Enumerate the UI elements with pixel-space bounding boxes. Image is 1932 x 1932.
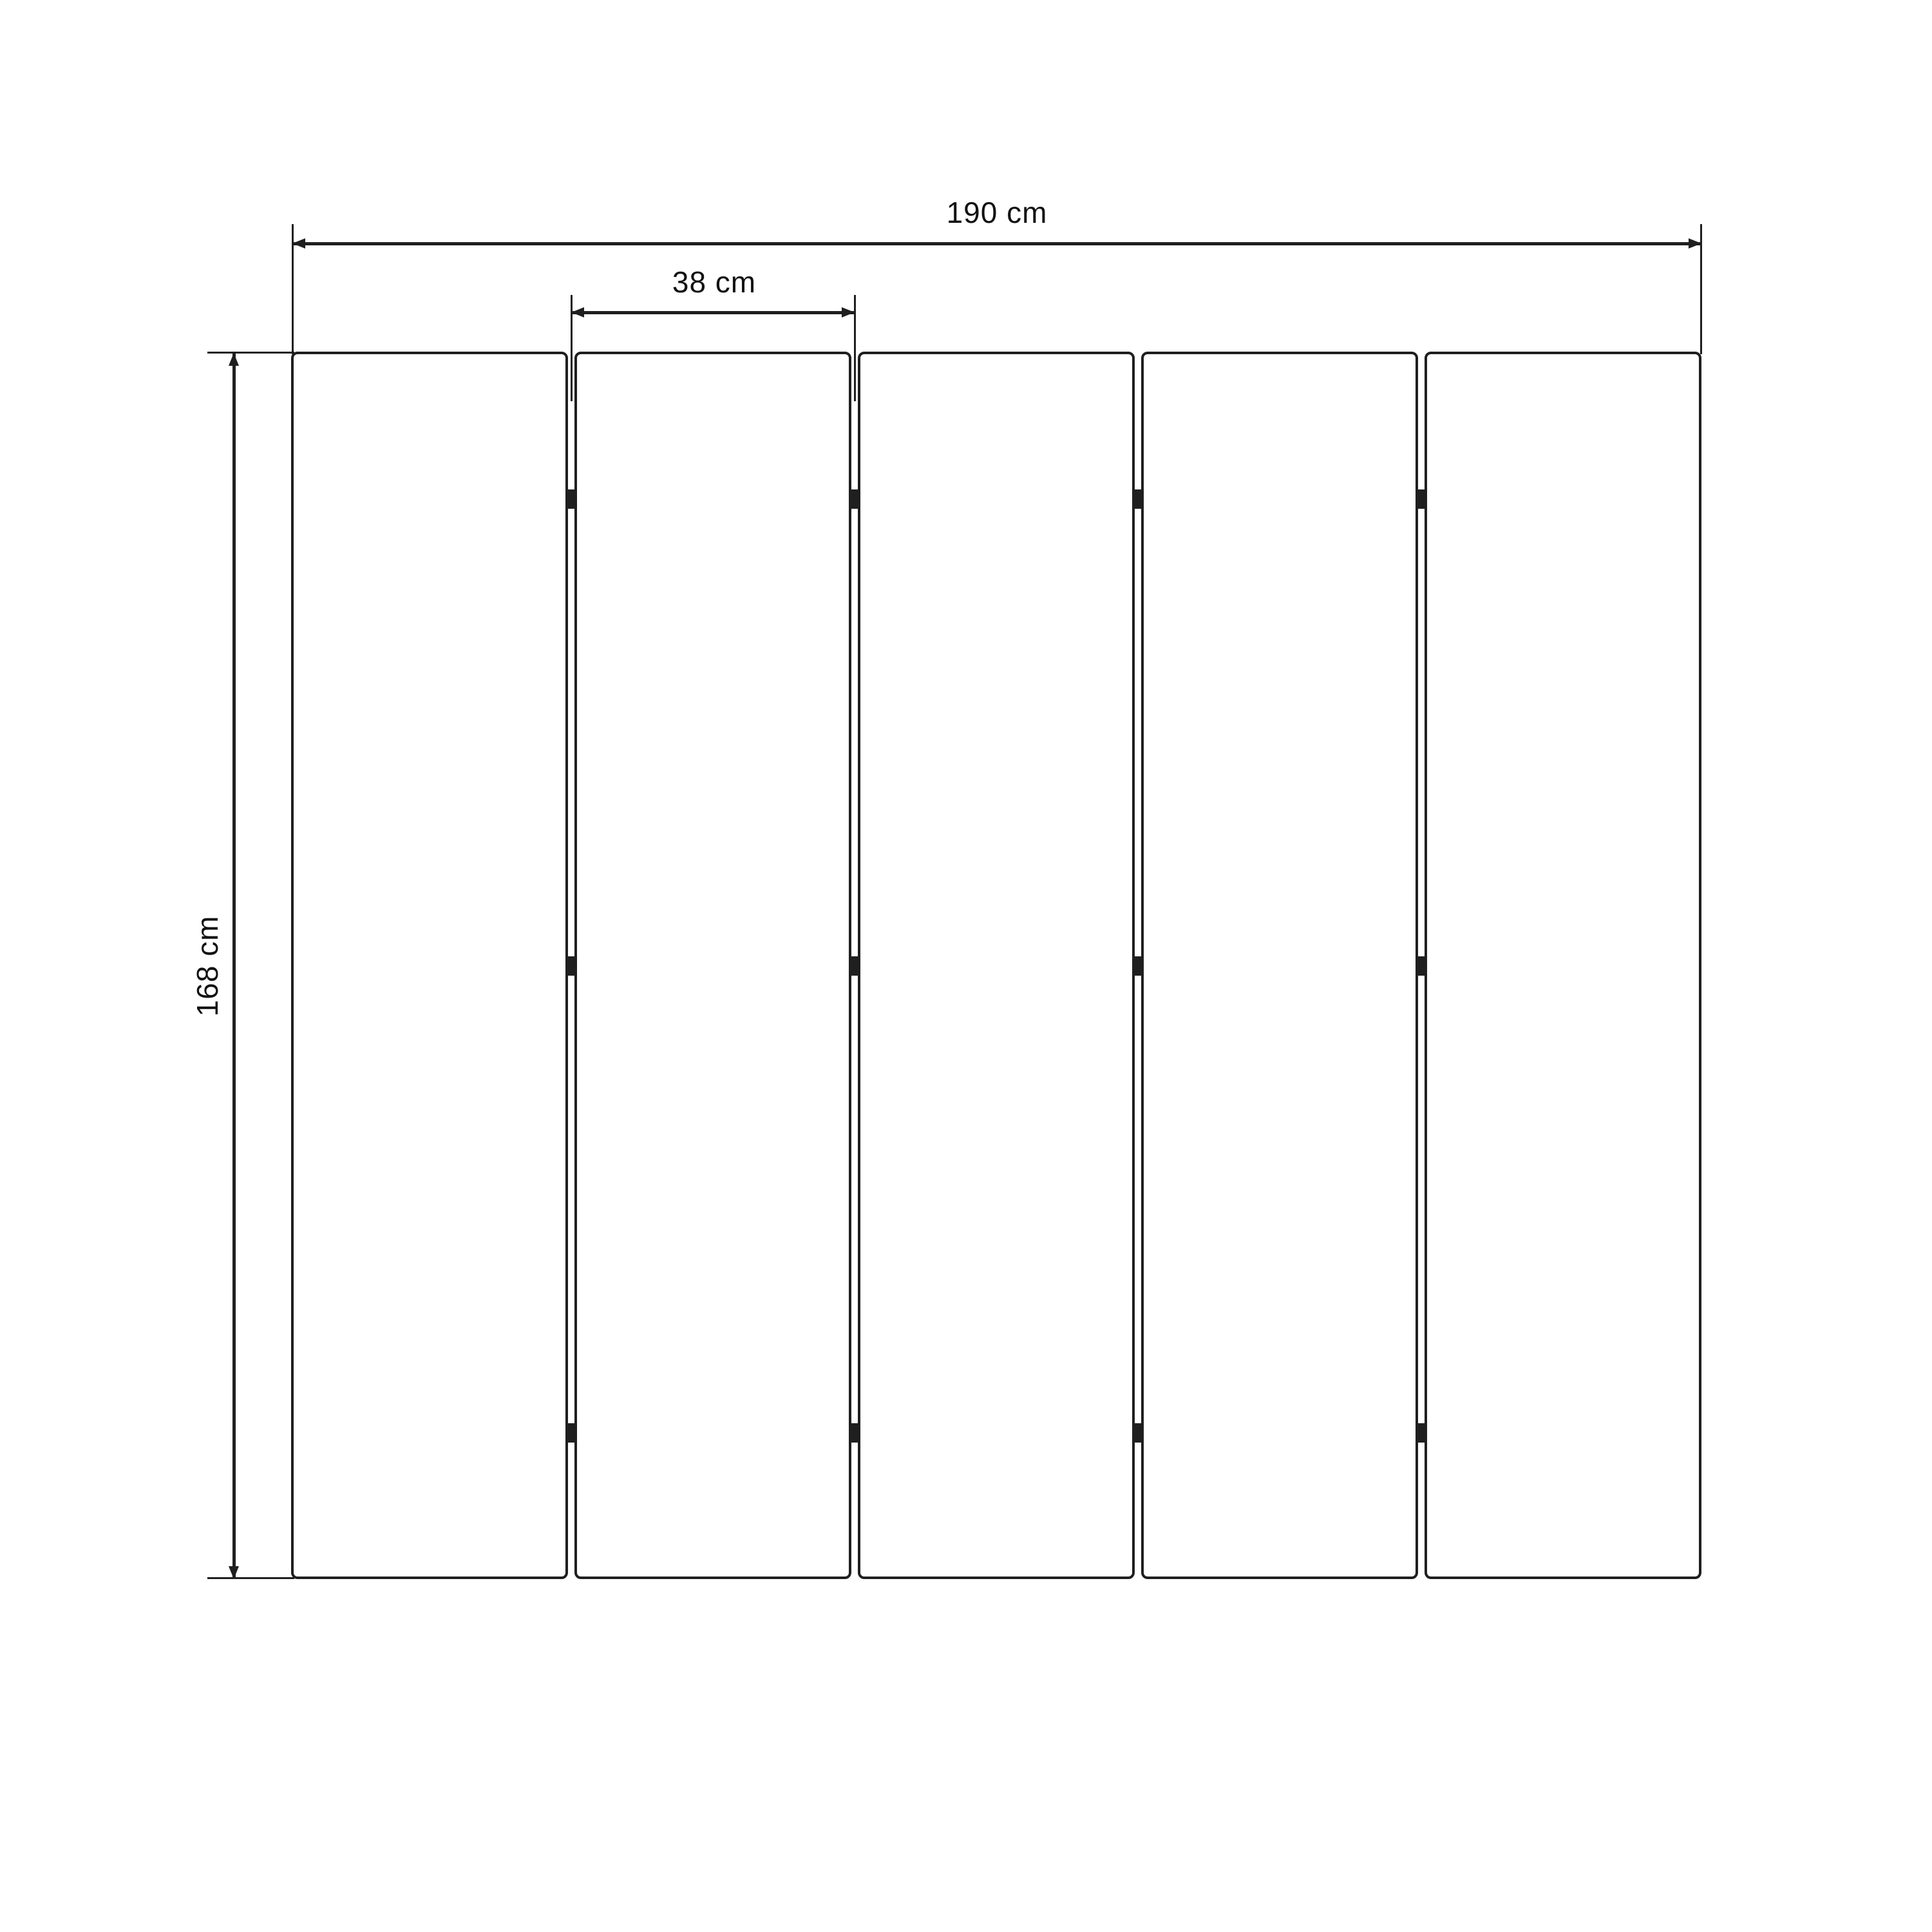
extension-line-right <box>1700 224 1702 354</box>
panel-width-label: 38 cm <box>618 264 811 300</box>
extension-tick-bottom <box>207 1577 294 1579</box>
extension-line-gap-1 <box>571 295 573 401</box>
screen-panel-1 <box>291 352 568 1579</box>
total-width-dimension-line <box>292 242 1701 245</box>
extension-tick-top <box>207 352 294 354</box>
arrowhead-up-icon <box>229 353 239 366</box>
extension-line-gap-2 <box>854 295 856 401</box>
screen-panel-4 <box>1141 352 1418 1579</box>
screen-panel-3 <box>858 352 1135 1579</box>
arrowhead-left-icon <box>292 238 305 249</box>
screen-panel-5 <box>1425 352 1701 1579</box>
arrowhead-right-icon <box>1689 238 1701 249</box>
total-width-label: 190 cm <box>900 194 1094 231</box>
screen-panel-2 <box>574 352 851 1579</box>
panel-width-dimension-line <box>571 311 855 314</box>
panel-height-dimension-line <box>232 353 236 1579</box>
panel-height-label: 168 cm <box>189 869 225 1063</box>
arrowhead-left-icon <box>571 307 584 317</box>
dimension-drawing: 190 cm 38 cm 168 cm <box>0 0 1932 1932</box>
arrowhead-right-icon <box>842 307 855 317</box>
extension-line-left <box>292 224 294 354</box>
